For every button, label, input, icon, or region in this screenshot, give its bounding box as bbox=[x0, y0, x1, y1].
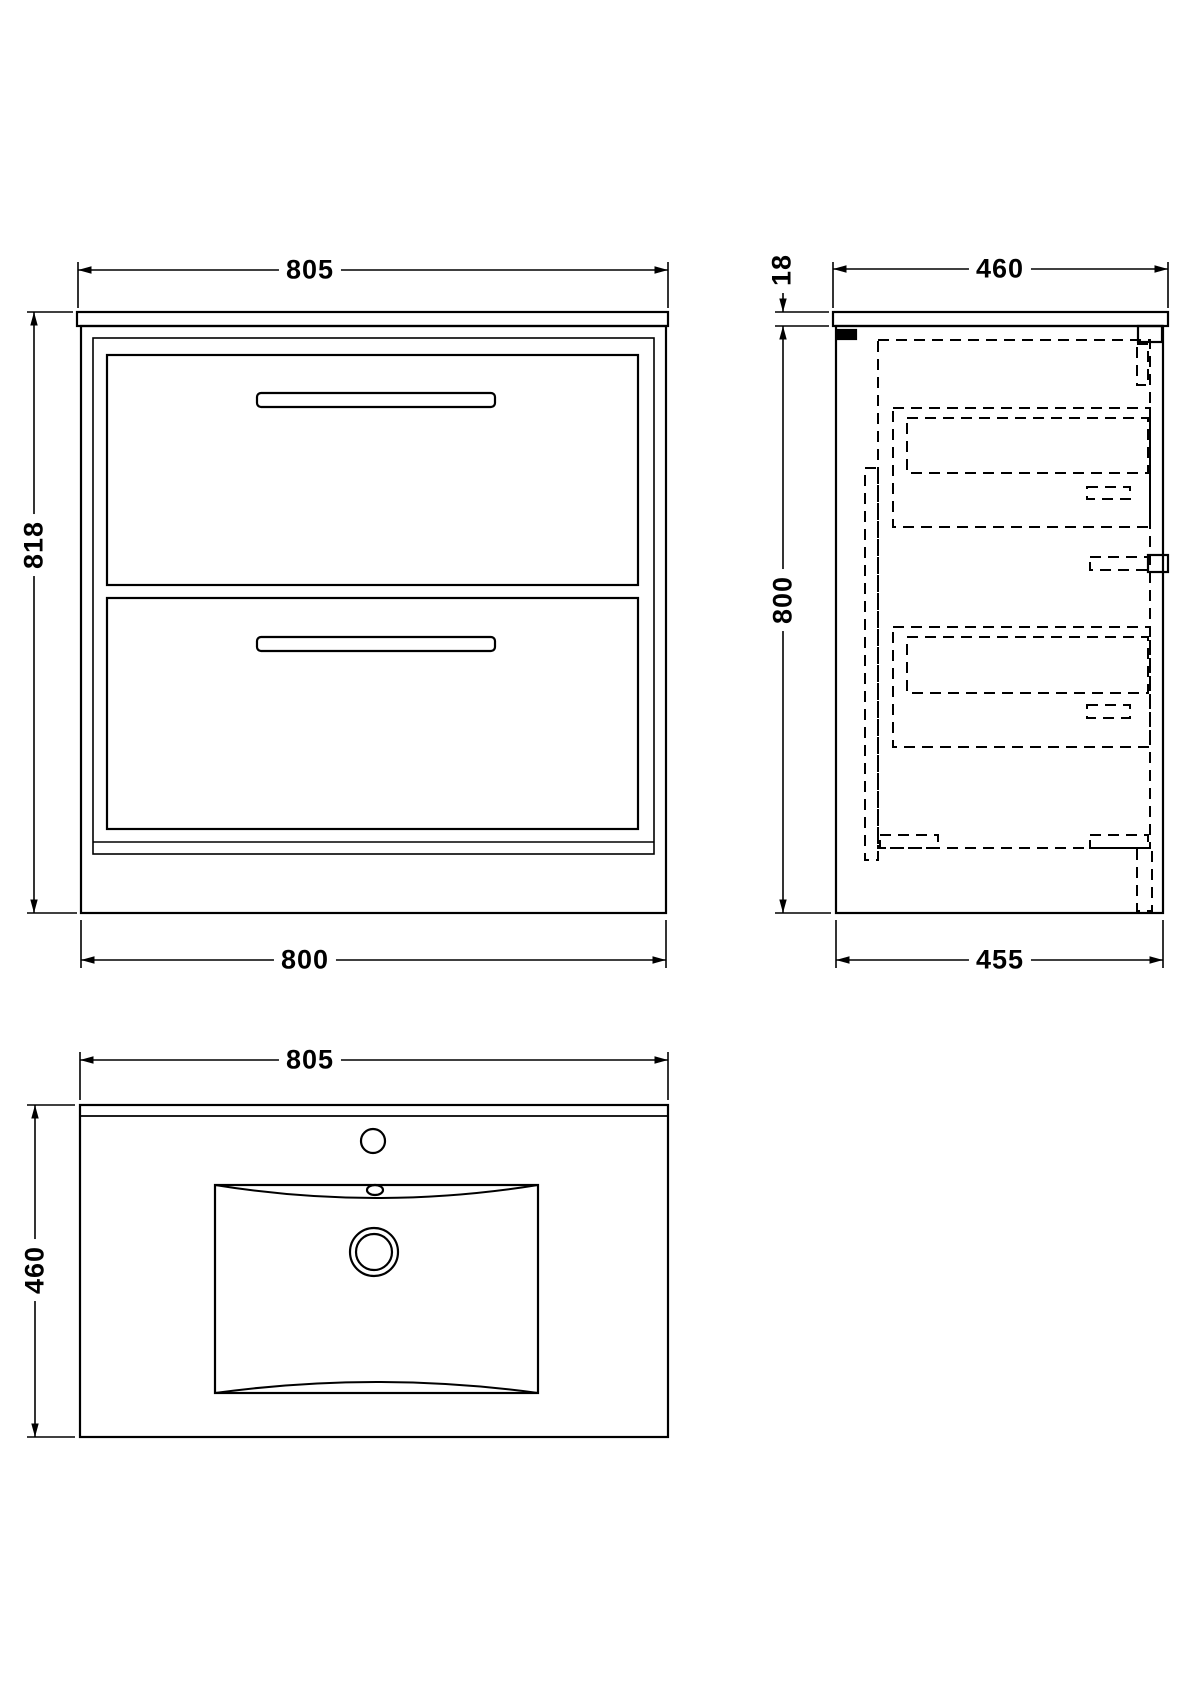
dim-label-basin-width: 805 bbox=[279, 1046, 341, 1075]
dim-label-side-counter-thickness: 18 bbox=[768, 247, 797, 293]
front-drawer-2-handle bbox=[257, 637, 495, 651]
basin-bowl-bottom-curve bbox=[215, 1382, 538, 1393]
side-hidden-structure-dashed bbox=[865, 340, 1152, 911]
drain-hole-inner bbox=[356, 1234, 392, 1270]
side-drawer-2-runner-dashed bbox=[1087, 705, 1130, 718]
drain-hole-outer bbox=[350, 1228, 398, 1276]
front-view bbox=[77, 312, 668, 913]
side-cabinet-body bbox=[836, 326, 1163, 913]
dim-label-front-base-width: 800 bbox=[274, 946, 336, 975]
technical-drawing-canvas: 805 818 800 460 18 800 455 805 460 bbox=[0, 0, 1200, 1698]
dim-label-front-width: 805 bbox=[279, 256, 341, 285]
basin-bowl bbox=[215, 1185, 538, 1393]
side-foot-left-dashed bbox=[880, 835, 938, 848]
dim-label-side-depth: 460 bbox=[969, 255, 1031, 284]
tap-hole bbox=[361, 1129, 385, 1153]
front-cabinet-body bbox=[81, 326, 666, 913]
side-back-channel-dashed bbox=[1137, 344, 1148, 385]
side-interior-outline-dashed bbox=[878, 340, 1150, 848]
front-drawer-1-handle bbox=[257, 393, 495, 407]
dim-label-basin-depth: 460 bbox=[21, 1239, 50, 1301]
side-front-panel-dashed bbox=[865, 468, 878, 860]
side-drawer-2-box-dashed bbox=[907, 637, 1148, 693]
side-countertop bbox=[833, 312, 1168, 326]
side-fixing-bracket bbox=[838, 330, 856, 339]
side-foot-right-dashed bbox=[1090, 835, 1148, 848]
dim-label-side-height: 800 bbox=[769, 569, 798, 631]
front-drawer-1 bbox=[107, 355, 638, 585]
front-drawer-2 bbox=[107, 598, 638, 829]
front-countertop bbox=[77, 312, 668, 326]
side-mid-runner-dashed bbox=[1090, 557, 1148, 570]
basin-bowl-top-curve bbox=[215, 1185, 538, 1198]
dim-label-front-height: 818 bbox=[20, 514, 49, 576]
dimension-lines bbox=[27, 262, 1168, 1437]
side-back-leg-dashed bbox=[1137, 848, 1152, 911]
side-drawer-1-box-dashed bbox=[907, 418, 1148, 473]
side-drawer-1-runner-dashed bbox=[1087, 487, 1130, 499]
basin-view bbox=[80, 1105, 668, 1437]
side-drawer-2-outline-dashed bbox=[893, 627, 1150, 747]
dim-label-side-base-depth: 455 bbox=[969, 946, 1031, 975]
front-inner-frame bbox=[93, 338, 654, 854]
overflow-hole bbox=[367, 1185, 383, 1195]
side-drawer-1-outline-dashed bbox=[893, 408, 1150, 527]
side-view bbox=[833, 312, 1168, 913]
